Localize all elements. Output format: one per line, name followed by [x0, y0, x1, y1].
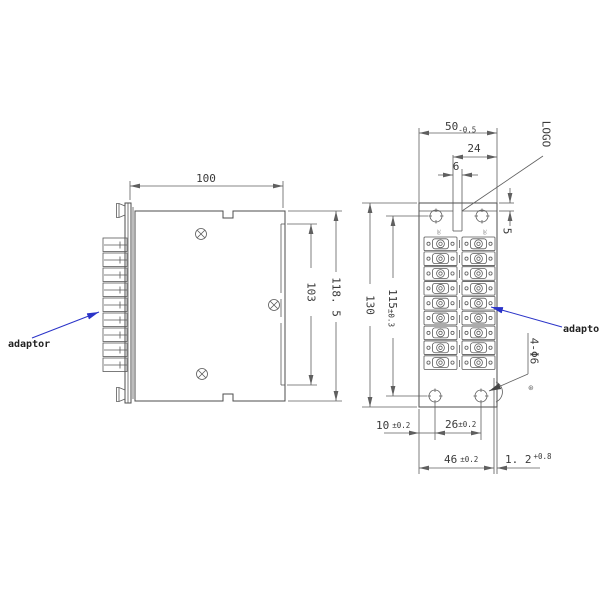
dim-label-130: 130: [364, 295, 377, 315]
lgx-module-drawing: 100 103 118. 5 adaptor: [0, 0, 600, 600]
dimension-strip-5: 5: [499, 188, 514, 234]
dim-46-tol: ±0.2: [460, 455, 478, 464]
dim-1-2-value: 1. 2: [505, 453, 532, 466]
dimension-width-100: 100: [130, 172, 283, 208]
adaptor-label-left: adaptor: [8, 339, 50, 350]
adaptor-callout-left: adaptor: [8, 312, 99, 350]
adaptor-callout-right: adaptor: [491, 307, 600, 335]
adaptor-leader-arrow: [32, 312, 99, 338]
dim-label-10: 10±0.2: [376, 419, 410, 432]
side-view: 100 103 118. 5 adaptor: [8, 172, 343, 403]
dim-50-value: 50: [445, 120, 458, 133]
faceplate: [125, 203, 133, 403]
dim-115-value: 115: [387, 289, 400, 309]
dimension-logo-24: 24: [453, 142, 497, 157]
dimension-hole-pitch-26: 26±0.2: [435, 418, 481, 433]
dim-115-tol: ±0.3: [387, 309, 396, 327]
module-body-outline: [135, 211, 285, 401]
dim-label-1-2: 1. 2+0.8: [505, 452, 552, 466]
dim-1-2-tol: +0.8: [534, 452, 553, 461]
screw-icon: [269, 300, 280, 311]
adaptor-label-right: adaptor: [563, 324, 600, 335]
screw-icon: [197, 369, 208, 380]
mount-holes-leader: [489, 374, 528, 391]
dimension-cover-103: 103: [287, 224, 318, 385]
dimension-edge-hole-10: 10±0.2: [376, 419, 435, 433]
mounting-hole: [474, 389, 489, 404]
logo-label: LOGO: [540, 121, 553, 148]
dimension-holes-115: 115±0.3: [386, 216, 428, 396]
dimension-height-118-5: 118. 5: [288, 211, 343, 401]
dimension-slot-6: 6: [438, 160, 478, 175]
dim-label-46: 46±0.2: [444, 453, 478, 466]
dim-26-tol: ±0.2: [458, 420, 476, 429]
dim-label-24: 24: [467, 142, 481, 155]
front-view: 30 30 50-0.5 24 6: [362, 120, 600, 474]
dim-label-103: 103: [305, 282, 318, 302]
dim-label-100: 100: [196, 172, 216, 185]
dim-10-tol: ±0.2: [392, 421, 410, 430]
screw-icon: [196, 229, 207, 240]
dim-label-50: 50-0.5: [445, 120, 476, 135]
dim-label-115: 115±0.3: [387, 289, 400, 327]
dim-label-118-5: 118. 5: [330, 277, 343, 317]
dimension-thickness-1-2: 1. 2+0.8: [497, 452, 552, 468]
adapter-grid: 30 30: [424, 229, 495, 369]
mounting-hole: [428, 389, 443, 404]
adapter-stack-side: [103, 238, 127, 372]
dim-label-5: 5: [501, 228, 514, 235]
cover-edge: [281, 224, 285, 385]
thumbscrew-top: [117, 204, 126, 218]
technical-drawing-canvas: 100 103 118. 5 adaptor: [0, 0, 600, 600]
dim-label-6: 6: [453, 160, 460, 173]
adaptor-leader-arrow: [491, 307, 562, 327]
surface-mark-symbol: ⊛: [528, 384, 534, 392]
adapter-column-mark: 30: [481, 229, 487, 235]
mount-holes-note: 4-Φ6: [528, 338, 541, 365]
dim-10-value: 10: [376, 419, 389, 432]
flange-corner-detail: [494, 378, 502, 474]
dim-label-26: 26±0.2: [445, 418, 476, 431]
dim-46-value: 46: [444, 453, 457, 466]
dim-50-tol: -0.5: [458, 126, 476, 135]
dimension-flange-46: 46±0.2: [419, 453, 494, 468]
adapter-column-mark: 30: [435, 229, 441, 235]
thumbscrew-bottom: [117, 388, 126, 402]
dim-26-value: 26: [445, 418, 458, 431]
